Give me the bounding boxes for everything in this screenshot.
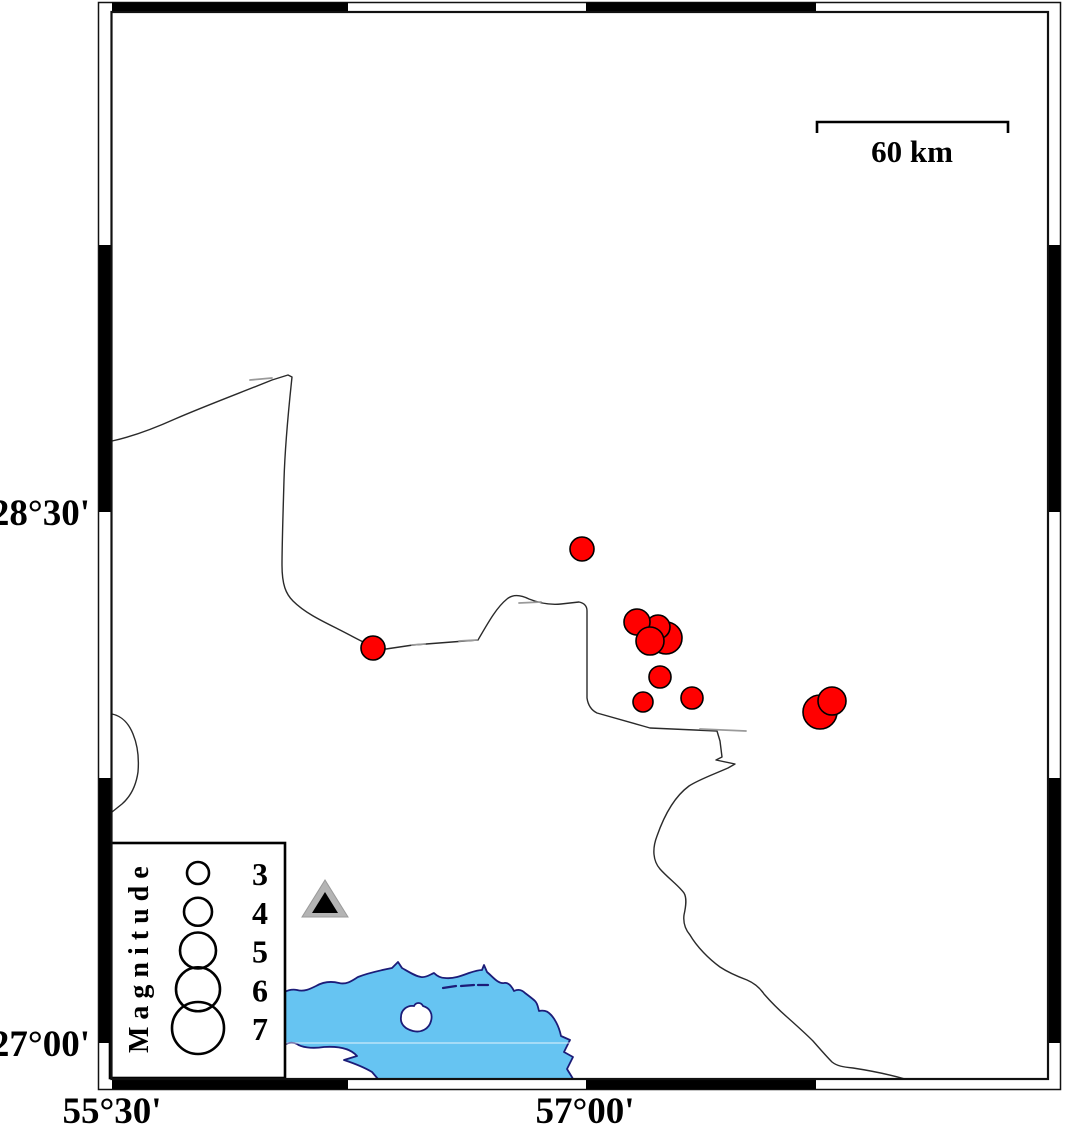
legend-magnitude-label: 6 bbox=[252, 972, 268, 1008]
frame-segment bbox=[586, 1079, 816, 1089]
island bbox=[401, 1003, 432, 1032]
coastline-inlet bbox=[112, 714, 138, 812]
frame-segment bbox=[99, 245, 111, 512]
lon-label-right: 57°00' bbox=[535, 1091, 634, 1128]
legend-magnitude-label: 5 bbox=[252, 934, 268, 970]
frame-segment bbox=[586, 3, 816, 13]
earthquake-markers bbox=[361, 537, 846, 729]
frame-segment bbox=[1048, 778, 1060, 1043]
seismicity-map-page: 60 km Magnitude 34567 28°30' 27°00' 55°3… bbox=[0, 0, 1066, 1128]
earthquake-marker bbox=[633, 692, 653, 712]
scale-bar-line bbox=[817, 122, 1008, 133]
legend-magnitude-label: 3 bbox=[252, 856, 268, 892]
seismicity-map: 60 km Magnitude 34567 28°30' 27°00' 55°3… bbox=[0, 0, 1066, 1128]
earthquake-marker bbox=[681, 687, 703, 709]
earthquake-marker bbox=[649, 666, 671, 688]
earthquake-marker bbox=[570, 537, 594, 561]
scale-bar: 60 km bbox=[817, 122, 1008, 169]
earthquake-marker bbox=[636, 627, 664, 655]
frame-segment bbox=[112, 3, 348, 13]
lat-label-top: 28°30' bbox=[0, 493, 90, 534]
lat-label-bottom: 27°00' bbox=[0, 1024, 90, 1065]
legend-magnitude-label: 4 bbox=[252, 895, 268, 931]
lon-label-left: 55°30' bbox=[62, 1091, 161, 1128]
sea-layer bbox=[272, 962, 573, 1079]
legend-title: Magnitude bbox=[124, 859, 155, 1053]
legend-magnitude-label: 7 bbox=[252, 1011, 268, 1047]
earthquake-marker bbox=[361, 636, 385, 660]
scale-bar-label: 60 km bbox=[871, 134, 953, 169]
frame-segment bbox=[99, 778, 111, 1043]
magnitude-legend: Magnitude 34567 bbox=[110, 843, 285, 1078]
frame-segment bbox=[112, 1079, 348, 1089]
frame-segment bbox=[1048, 245, 1060, 512]
earthquake-marker bbox=[818, 687, 846, 715]
station-marker bbox=[302, 880, 348, 917]
